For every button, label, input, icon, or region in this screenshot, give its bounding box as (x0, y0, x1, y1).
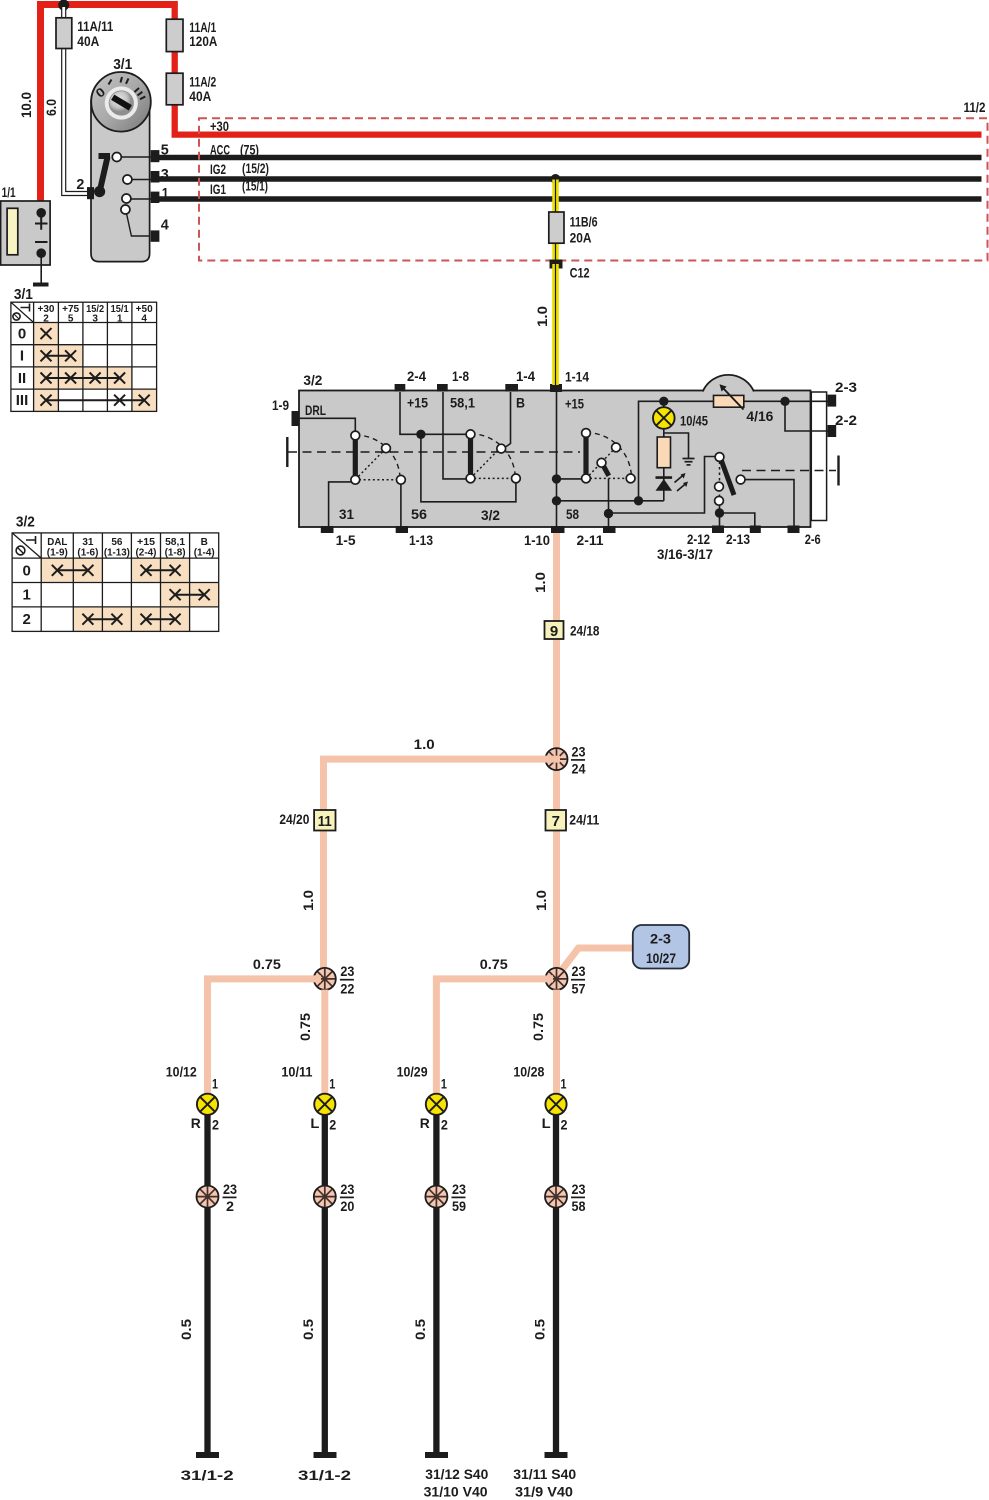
svg-text:24/20: 24/20 (279, 811, 309, 827)
svg-text:1-4: 1-4 (516, 368, 535, 384)
svg-text:23: 23 (572, 963, 586, 979)
svg-text:3: 3 (92, 314, 98, 325)
svg-text:11: 11 (318, 813, 332, 830)
svg-text:(1-9): (1-9) (47, 548, 68, 559)
svg-text:1: 1 (441, 1076, 447, 1092)
svg-text:23: 23 (572, 1181, 586, 1197)
svg-text:1-10: 1-10 (524, 532, 550, 548)
svg-text:R: R (420, 1115, 430, 1131)
svg-text:3/1: 3/1 (113, 56, 132, 73)
svg-text:20: 20 (340, 1198, 354, 1214)
svg-text:23: 23 (340, 963, 354, 979)
svg-text:B: B (516, 395, 525, 411)
svg-text:10/11: 10/11 (281, 1064, 312, 1080)
svg-text:11/2: 11/2 (964, 99, 986, 115)
svg-text:1-8: 1-8 (452, 368, 469, 384)
svg-text:(15/1): (15/1) (242, 178, 268, 194)
svg-text:56: 56 (111, 537, 123, 548)
svg-text:6.0: 6.0 (43, 99, 59, 116)
svg-text:4: 4 (141, 314, 147, 325)
svg-text:4: 4 (161, 217, 170, 234)
svg-text:31/1-2: 31/1-2 (298, 1467, 351, 1483)
svg-text:1/1: 1/1 (2, 184, 16, 200)
svg-text:IG1: IG1 (210, 181, 226, 197)
svg-text:23: 23 (223, 1181, 237, 1197)
svg-text:2: 2 (329, 1117, 336, 1133)
svg-text:31/11 S40: 31/11 S40 (513, 1466, 576, 1482)
svg-text:1: 1 (23, 587, 31, 604)
svg-text:23: 23 (572, 743, 586, 759)
svg-text:(2-4): (2-4) (136, 548, 157, 559)
svg-text:10/45: 10/45 (680, 413, 708, 429)
svg-text:2-11: 2-11 (577, 532, 604, 548)
svg-text:IG2: IG2 (210, 161, 226, 177)
svg-text:9: 9 (550, 623, 558, 640)
svg-text:1.0: 1.0 (414, 736, 435, 752)
svg-text:20A: 20A (570, 229, 592, 245)
svg-text:31/12 S40: 31/12 S40 (425, 1466, 488, 1482)
svg-text:2-12: 2-12 (687, 531, 710, 547)
svg-text:2: 2 (226, 1198, 234, 1214)
svg-text:(1-4): (1-4) (194, 548, 215, 559)
svg-text:(1-8): (1-8) (165, 548, 186, 559)
svg-text:5: 5 (68, 314, 74, 325)
svg-text:1: 1 (329, 1076, 335, 1092)
svg-text:2: 2 (76, 176, 84, 193)
svg-text:1-14: 1-14 (565, 369, 589, 385)
svg-text:58,1: 58,1 (450, 395, 475, 411)
svg-text:1.0: 1.0 (534, 306, 550, 327)
svg-text:II: II (18, 370, 26, 387)
svg-text:4/16: 4/16 (746, 408, 773, 424)
svg-text:22: 22 (340, 981, 354, 997)
svg-text:0.5: 0.5 (300, 1319, 316, 1340)
svg-text:0: 0 (23, 562, 31, 579)
svg-text:59: 59 (452, 1198, 466, 1214)
svg-text:11A/11: 11A/11 (77, 18, 113, 34)
svg-text:III: III (16, 392, 29, 409)
svg-text:7: 7 (552, 813, 560, 830)
svg-text:0.5: 0.5 (412, 1319, 428, 1340)
svg-text:56: 56 (411, 506, 427, 522)
svg-text:3/1: 3/1 (14, 286, 33, 303)
svg-text:(75): (75) (240, 142, 259, 158)
svg-text:0.75: 0.75 (253, 956, 281, 972)
svg-text:+15: +15 (565, 396, 584, 412)
svg-text:2-13: 2-13 (726, 531, 750, 547)
svg-text:11B/6: 11B/6 (570, 213, 598, 229)
svg-text:DRL: DRL (305, 402, 326, 418)
svg-text:40A: 40A (77, 33, 99, 49)
svg-text:R: R (191, 1115, 201, 1131)
svg-text:3/2: 3/2 (303, 372, 322, 388)
svg-text:58: 58 (566, 506, 579, 522)
svg-text:3/2: 3/2 (481, 507, 500, 523)
svg-text:0.5: 0.5 (532, 1319, 548, 1340)
svg-text:31: 31 (82, 537, 94, 548)
svg-text:120A: 120A (189, 33, 217, 49)
svg-text:40A: 40A (189, 88, 211, 104)
svg-text:DAL: DAL (47, 537, 67, 548)
svg-text:58,1: 58,1 (165, 537, 185, 548)
svg-text:1: 1 (561, 1076, 567, 1092)
svg-text:58: 58 (572, 1198, 586, 1214)
svg-text:3/2: 3/2 (16, 514, 35, 531)
svg-text:B: B (201, 537, 208, 548)
svg-text:L: L (542, 1115, 551, 1131)
svg-text:0.5: 0.5 (178, 1319, 194, 1340)
svg-text:10/27: 10/27 (646, 950, 676, 966)
svg-text:31/9 V40: 31/9 V40 (515, 1484, 573, 1500)
svg-text:10/28: 10/28 (513, 1064, 544, 1080)
svg-text:0.75: 0.75 (297, 1013, 313, 1041)
svg-text:2-2: 2-2 (835, 412, 857, 428)
svg-text:1-9: 1-9 (272, 397, 289, 413)
svg-text:3/16-3/17: 3/16-3/17 (657, 546, 713, 562)
svg-text:2-6: 2-6 (805, 531, 821, 547)
svg-text:31/1-2: 31/1-2 (181, 1467, 234, 1483)
svg-text:+15: +15 (137, 537, 155, 548)
svg-text:2: 2 (561, 1117, 568, 1133)
svg-text:10.0: 10.0 (18, 92, 34, 118)
svg-text:24: 24 (572, 761, 586, 777)
svg-text:2-4: 2-4 (407, 368, 426, 384)
svg-text:ACC: ACC (210, 142, 230, 158)
svg-text:2: 2 (441, 1117, 448, 1133)
svg-text:(1-13): (1-13) (104, 548, 130, 559)
svg-text:1.0: 1.0 (533, 890, 549, 911)
svg-text:23: 23 (340, 1181, 354, 1197)
svg-text:1: 1 (117, 314, 123, 325)
svg-text:(15/2): (15/2) (242, 160, 269, 176)
svg-text:31: 31 (339, 506, 354, 522)
svg-text:57: 57 (572, 981, 586, 997)
svg-text:0.75: 0.75 (530, 1013, 546, 1041)
svg-text:1: 1 (212, 1076, 218, 1092)
svg-text:I: I (20, 348, 24, 365)
svg-text:1.0: 1.0 (300, 890, 316, 911)
svg-text:+30: +30 (210, 118, 229, 134)
svg-text:1-13: 1-13 (409, 532, 433, 548)
svg-text:+15: +15 (407, 395, 428, 411)
svg-text:2: 2 (212, 1117, 219, 1133)
svg-text:2-3: 2-3 (835, 379, 857, 395)
svg-text:0: 0 (18, 326, 26, 343)
svg-text:2: 2 (23, 611, 31, 628)
svg-text:24/18: 24/18 (570, 623, 600, 639)
svg-text:2: 2 (43, 314, 49, 325)
svg-text:2-3: 2-3 (650, 930, 671, 946)
svg-text:(1-6): (1-6) (77, 548, 98, 559)
svg-text:24/11: 24/11 (569, 812, 599, 828)
svg-text:31/10 V40: 31/10 V40 (424, 1484, 488, 1500)
svg-text:L: L (310, 1115, 319, 1131)
svg-text:1-5: 1-5 (336, 532, 356, 548)
svg-text:1.0: 1.0 (532, 572, 548, 593)
svg-text:C12: C12 (570, 265, 590, 281)
svg-text:10/29: 10/29 (397, 1064, 428, 1080)
svg-text:0.75: 0.75 (480, 956, 508, 972)
svg-text:10/12: 10/12 (166, 1064, 197, 1080)
svg-text:23: 23 (452, 1181, 466, 1197)
